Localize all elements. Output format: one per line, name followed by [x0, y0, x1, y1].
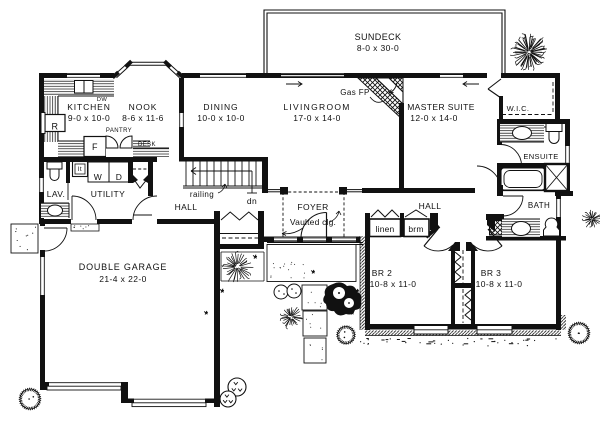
svg-text:10-8 x 11-0: 10-8 x 11-0 [370, 279, 417, 289]
svg-text:ENSUITE: ENSUITE [523, 152, 558, 161]
svg-text:10-8 x 11-0: 10-8 x 11-0 [476, 279, 523, 289]
svg-text:KITCHEN: KITCHEN [67, 102, 111, 112]
svg-text:BR 3: BR 3 [481, 268, 502, 278]
svg-text:SUNDECK: SUNDECK [355, 32, 402, 42]
svg-text:DESK: DESK [138, 142, 156, 148]
svg-text:8-0 x 30-0: 8-0 x 30-0 [357, 43, 399, 53]
svg-text:D: D [116, 172, 123, 182]
svg-text:Gas FP: Gas FP [340, 88, 370, 97]
svg-text:F: F [92, 142, 98, 152]
svg-text:MASTER SUITE: MASTER SUITE [407, 102, 475, 112]
svg-text:12-0 x 14-0: 12-0 x 14-0 [410, 113, 457, 123]
svg-text:21-4 x 22-0: 21-4 x 22-0 [99, 274, 146, 284]
svg-text:9-0 x 10-0: 9-0 x 10-0 [68, 113, 110, 123]
svg-text:brm: brm [408, 224, 423, 234]
svg-text:dn: dn [247, 196, 257, 206]
svg-text:HALL: HALL [419, 201, 442, 211]
svg-text:FOYER: FOYER [297, 202, 328, 212]
svg-text:10-0 x 10-0: 10-0 x 10-0 [197, 113, 244, 123]
svg-text:PANTRY: PANTRY [106, 128, 132, 134]
svg-text:BATH: BATH [528, 201, 550, 210]
svg-text:LAV.: LAV. [47, 189, 66, 199]
svg-text:R: R [52, 122, 59, 132]
svg-text:W: W [94, 172, 102, 182]
svg-text:NOOK: NOOK [129, 102, 158, 112]
svg-text:8-6 x 11-6: 8-6 x 11-6 [122, 113, 164, 123]
svg-text:UTILITY: UTILITY [91, 189, 125, 199]
svg-text:HALL: HALL [175, 202, 198, 212]
svg-text:railing: railing [190, 190, 214, 199]
svg-text:17-0 x 14-0: 17-0 x 14-0 [293, 113, 340, 123]
svg-text:W.I.C.: W.I.C. [507, 104, 530, 113]
svg-text:LIVINGROOM: LIVINGROOM [283, 102, 350, 112]
svg-text:lt: lt [78, 166, 82, 173]
svg-text:DOUBLE GARAGE: DOUBLE GARAGE [79, 262, 167, 272]
svg-text:Vaulted clg.: Vaulted clg. [290, 217, 336, 227]
svg-text:DINING: DINING [203, 102, 238, 112]
svg-text:BR 2: BR 2 [372, 268, 393, 278]
svg-text:linen: linen [376, 224, 395, 234]
